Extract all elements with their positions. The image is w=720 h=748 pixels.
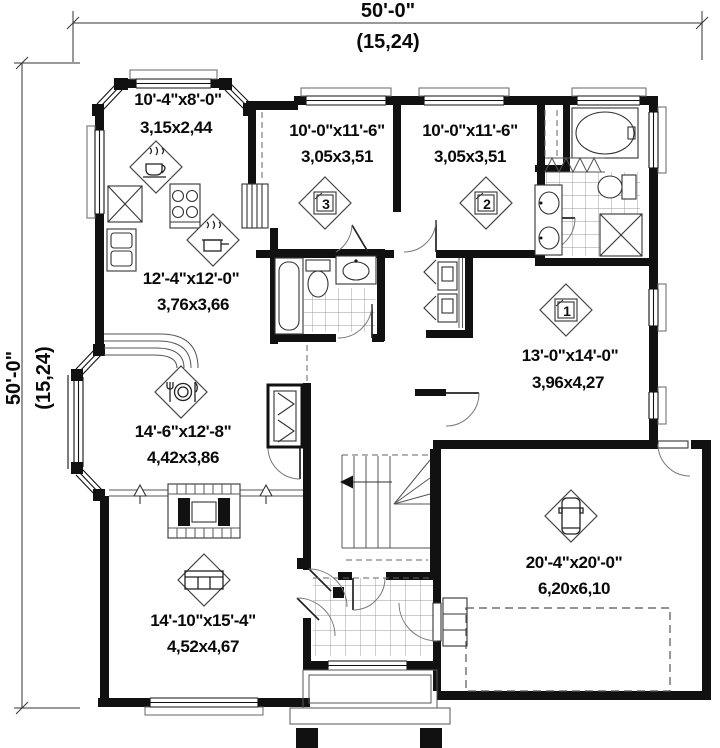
kitchen-fixtures	[104, 112, 268, 368]
bedroom3-imperial: 10'-0"x11'-6"	[289, 121, 385, 140]
bedroom3-door	[336, 225, 368, 252]
bedroom2-imperial: 10'-0"x11'-6"	[422, 121, 518, 140]
garage-imperial: 20'-4"x20'-0"	[526, 553, 623, 572]
bedroom2-metric: 3,05x3,51	[434, 147, 506, 166]
master-bedroom-imperial: 13'-0"x14'-0"	[522, 346, 619, 365]
walkin-closet-shelves	[545, 110, 557, 160]
dining-room-icon	[155, 366, 207, 418]
master-bedroom-door	[446, 393, 479, 426]
room-label-master-bedroom: 13'-0"x14'-0" 3,96x4,27	[522, 346, 619, 392]
living-room-imperial: 14'-10"x15'-4"	[150, 611, 256, 630]
breakfast-nook-metric: 3,15x2,44	[140, 118, 213, 137]
corner-shower	[600, 214, 642, 256]
top-dimension-metric: (15,24)	[356, 31, 419, 53]
top-dimension-imperial: 50'-0"	[361, 0, 415, 22]
bedroom3-number: 3	[322, 196, 330, 212]
master-bedroom-icon: 1	[540, 284, 592, 336]
ensuite-tub	[572, 108, 638, 158]
porch-column-left	[296, 728, 318, 748]
room-label-bedroom3: 10'-0"x11'-6" 3,05x3,51	[289, 121, 385, 166]
porch-column-right	[420, 728, 442, 748]
room-label-living-room: 14'-10"x15'-4" 4,52x4,67	[150, 611, 256, 656]
vanity-sink	[336, 256, 376, 284]
washer	[438, 262, 457, 290]
left-dimension-metric: (15,24)	[33, 346, 55, 409]
room-label-kitchen: 12'-4"x12'-0" 3,76x3,66	[143, 269, 240, 314]
floor-plan-canvas: 50'-0" (15,24) 50'-0" (15,24)	[0, 0, 720, 748]
master-bedroom-number: 1	[563, 303, 571, 319]
bedroom3-metric: 3,05x3,51	[301, 147, 373, 166]
kitchen-sink	[107, 229, 136, 271]
bathtub	[275, 258, 303, 334]
floor-plan-page: 50'-0" (15,24) 50'-0" (15,24)	[0, 0, 720, 748]
room-label-bedroom2: 10'-0"x11'-6" 3,05x3,51	[422, 121, 518, 166]
garage-door-outline	[466, 608, 670, 691]
dining-room-metric: 4,42x3,86	[147, 448, 219, 467]
porch	[290, 670, 450, 724]
bedroom2-door	[404, 220, 436, 252]
bedroom2-number: 2	[483, 196, 491, 212]
garage-icon	[545, 490, 597, 542]
ensuite-toilet	[598, 175, 636, 199]
living-room-metric: 4,52x4,67	[167, 637, 239, 656]
breakfast-nook-imperial: 10'-4"x8'-0"	[134, 90, 221, 109]
fireplace	[168, 484, 240, 538]
kitchen-metric: 3,76x3,66	[157, 295, 229, 314]
dining-room-imperial: 14'-6"x12'-8"	[135, 422, 232, 441]
doors	[268, 218, 690, 641]
pantry-armoire-door	[268, 447, 300, 479]
kitchen-imperial: 12'-4"x12'-0"	[143, 269, 240, 288]
bifold-doors	[424, 260, 436, 320]
bedroom2-icon: 2	[460, 177, 512, 229]
toilet	[306, 260, 330, 297]
pantry-shelves	[242, 184, 268, 228]
bedroom3-icon: 3	[299, 177, 351, 229]
kitchen-counter	[104, 334, 198, 368]
double-sinks	[535, 185, 562, 255]
room-label-dining-room: 14'-6"x12'-8" 4,42x3,86	[135, 422, 232, 467]
laundry-closet	[424, 258, 463, 328]
garage-steps	[443, 598, 467, 646]
room-label-breakfast-nook: 10'-4"x8'-0" 3,15x2,44	[134, 90, 221, 137]
armoire	[268, 385, 302, 447]
corner-cabinet	[108, 186, 142, 222]
left-dimension-imperial: 50'-0"	[3, 351, 25, 405]
garage-metric: 6,20x6,10	[538, 579, 610, 598]
garage-side-door	[658, 441, 690, 476]
dimension-top: 50'-0" (15,24)	[67, 0, 708, 62]
room-label-garage: 20'-4"x20'-0" 6,20x6,10	[526, 553, 623, 598]
staircase	[307, 345, 433, 578]
dryer	[438, 294, 457, 322]
stove	[170, 184, 200, 228]
living-room-icon	[178, 554, 230, 606]
master-bedroom-metric: 3,96x4,27	[532, 373, 604, 392]
